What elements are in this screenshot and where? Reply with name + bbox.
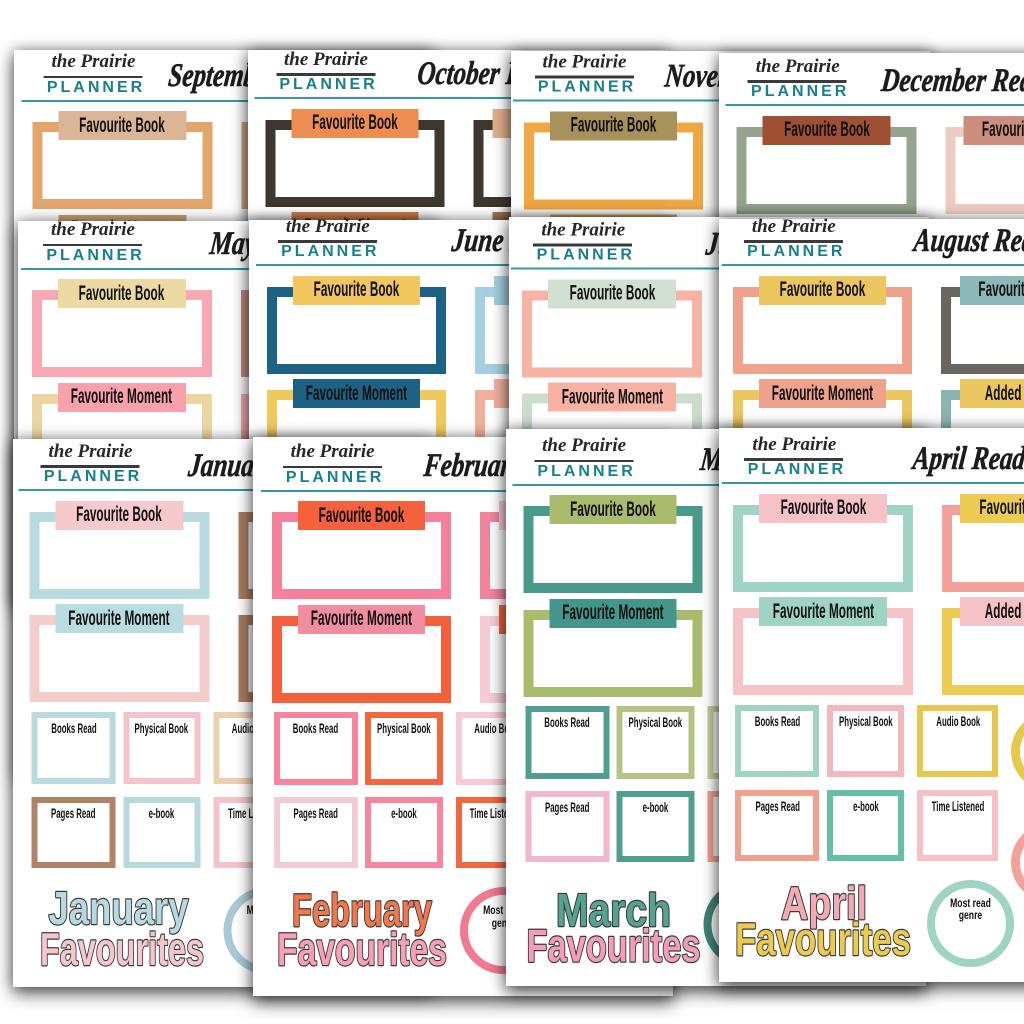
svg-text:Favourites: Favourites bbox=[526, 920, 700, 972]
svg-text:Favourites: Favourites bbox=[735, 913, 911, 965]
svg-text:Favourites: Favourites bbox=[277, 923, 447, 975]
svg-text:Favourites: Favourites bbox=[40, 923, 204, 975]
